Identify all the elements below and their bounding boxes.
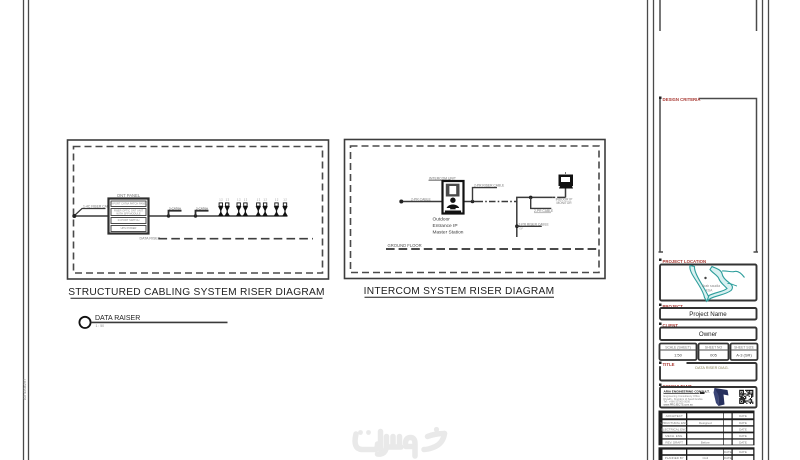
svg-text:DATE: DATE: [724, 456, 732, 460]
svg-text:WITH SFP MODULE: WITH SFP MODULE: [116, 211, 140, 215]
svg-text:STRUCTURAL ENG.: STRUCTURAL ENG.: [660, 421, 688, 425]
svg-text:DATE: DATE: [739, 421, 747, 425]
svg-text:ELECTRICAL ENG.: ELECTRICAL ENG.: [661, 427, 688, 431]
svg-text:Entrance IP: Entrance IP: [433, 223, 458, 229]
svg-text:GROUND FLOOR: GROUND FLOOR: [388, 243, 422, 248]
svg-text:A-3 (SR): A-3 (SR): [736, 353, 752, 358]
svg-text:Master Station: Master Station: [433, 230, 464, 236]
svg-text:DATE: DATE: [739, 440, 747, 444]
svg-text:ONT PANEL: ONT PANEL: [117, 193, 141, 198]
svg-text:Project Name: Project Name: [689, 311, 727, 318]
svg-text:2-PR CABLE: 2-PR CABLE: [411, 198, 432, 202]
svg-text:2-PR RISER CABLE: 2-PR RISER CABLE: [474, 184, 505, 188]
svg-text:DATA RISER: DATA RISER: [140, 237, 161, 241]
svg-text:SCALE (SHEET): SCALE (SHEET): [665, 346, 691, 350]
svg-text:DESIGN CRITERIA: DESIGN CRITERIA: [663, 97, 701, 102]
svg-text:005: 005: [710, 353, 717, 358]
svg-text:KSA: KSA: [706, 289, 714, 293]
svg-text:STRUCTURED CABLING SYSTEM RISE: STRUCTURED CABLING SYSTEM RISER DIAGRAM: [68, 287, 325, 298]
svg-text:MONITOR: MONITOR: [557, 201, 573, 205]
svg-text:Arab saudia: Arab saudia: [702, 284, 720, 288]
svg-text:INTERCOM UNIT: INTERCOM UNIT: [429, 176, 456, 180]
svg-text:INTERCOM SYSTEM RISER DIAGRAM: INTERCOM SYSTEM RISER DIAGRAM: [364, 286, 555, 297]
svg-text:www.PROJECTS.com.sa: www.PROJECTS.com.sa: [664, 402, 694, 406]
svg-text:Before: Before: [701, 440, 710, 444]
svg-text:DATE: DATE: [739, 427, 747, 431]
svg-text:ARCHITECT: ARCHITECT: [666, 414, 683, 418]
svg-text:UPS POWER: UPS POWER: [121, 226, 137, 230]
svg-text:A3 420x297: A3 420x297: [22, 378, 27, 400]
svg-text:24 PORT SWITCH: 24 PORT SWITCH: [118, 218, 140, 222]
svg-text:DATE: DATE: [739, 414, 747, 418]
svg-text:DATE: DATE: [724, 450, 732, 454]
svg-text:24 PORT CAT6A PATCH PANEL: 24 PORT CAT6A PATCH PANEL: [110, 202, 148, 206]
svg-text:2-CAT6A: 2-CAT6A: [169, 207, 181, 211]
svg-text:DATE: DATE: [739, 434, 747, 438]
svg-text:Civil: Civil: [702, 456, 708, 460]
svg-text:Outdoor: Outdoor: [433, 217, 451, 223]
svg-text:DATA RAISER: DATA RAISER: [95, 315, 140, 322]
svg-text:SHEET NO: SHEET NO: [705, 346, 723, 350]
svg-text:DATE: DATE: [739, 450, 747, 454]
svg-text:2-CAT6A: 2-CAT6A: [196, 207, 208, 211]
svg-text:MECH. ENG.: MECH. ENG.: [665, 434, 683, 438]
svg-text:SHEET SIZE: SHEET SIZE: [734, 346, 754, 350]
svg-text:REV. DRAFT: REV. DRAFT: [665, 440, 683, 444]
svg-text:GF: GF: [519, 226, 523, 230]
svg-text:PLANNED BY: PLANNED BY: [665, 456, 684, 460]
svg-text:TITLE: TITLE: [663, 362, 675, 367]
svg-text:1:50: 1:50: [674, 353, 683, 358]
svg-text:PROJECT LOCATION: PROJECT LOCATION: [663, 259, 707, 264]
svg-text:1 : 50: 1 : 50: [96, 324, 105, 328]
svg-text:Owner: Owner: [699, 331, 717, 338]
svg-text:2-PR CABLE: 2-PR CABLE: [534, 209, 554, 213]
svg-text:Designed: Designed: [699, 421, 712, 425]
svg-text:DATA RISER DIAG.: DATA RISER DIAG.: [695, 366, 728, 370]
